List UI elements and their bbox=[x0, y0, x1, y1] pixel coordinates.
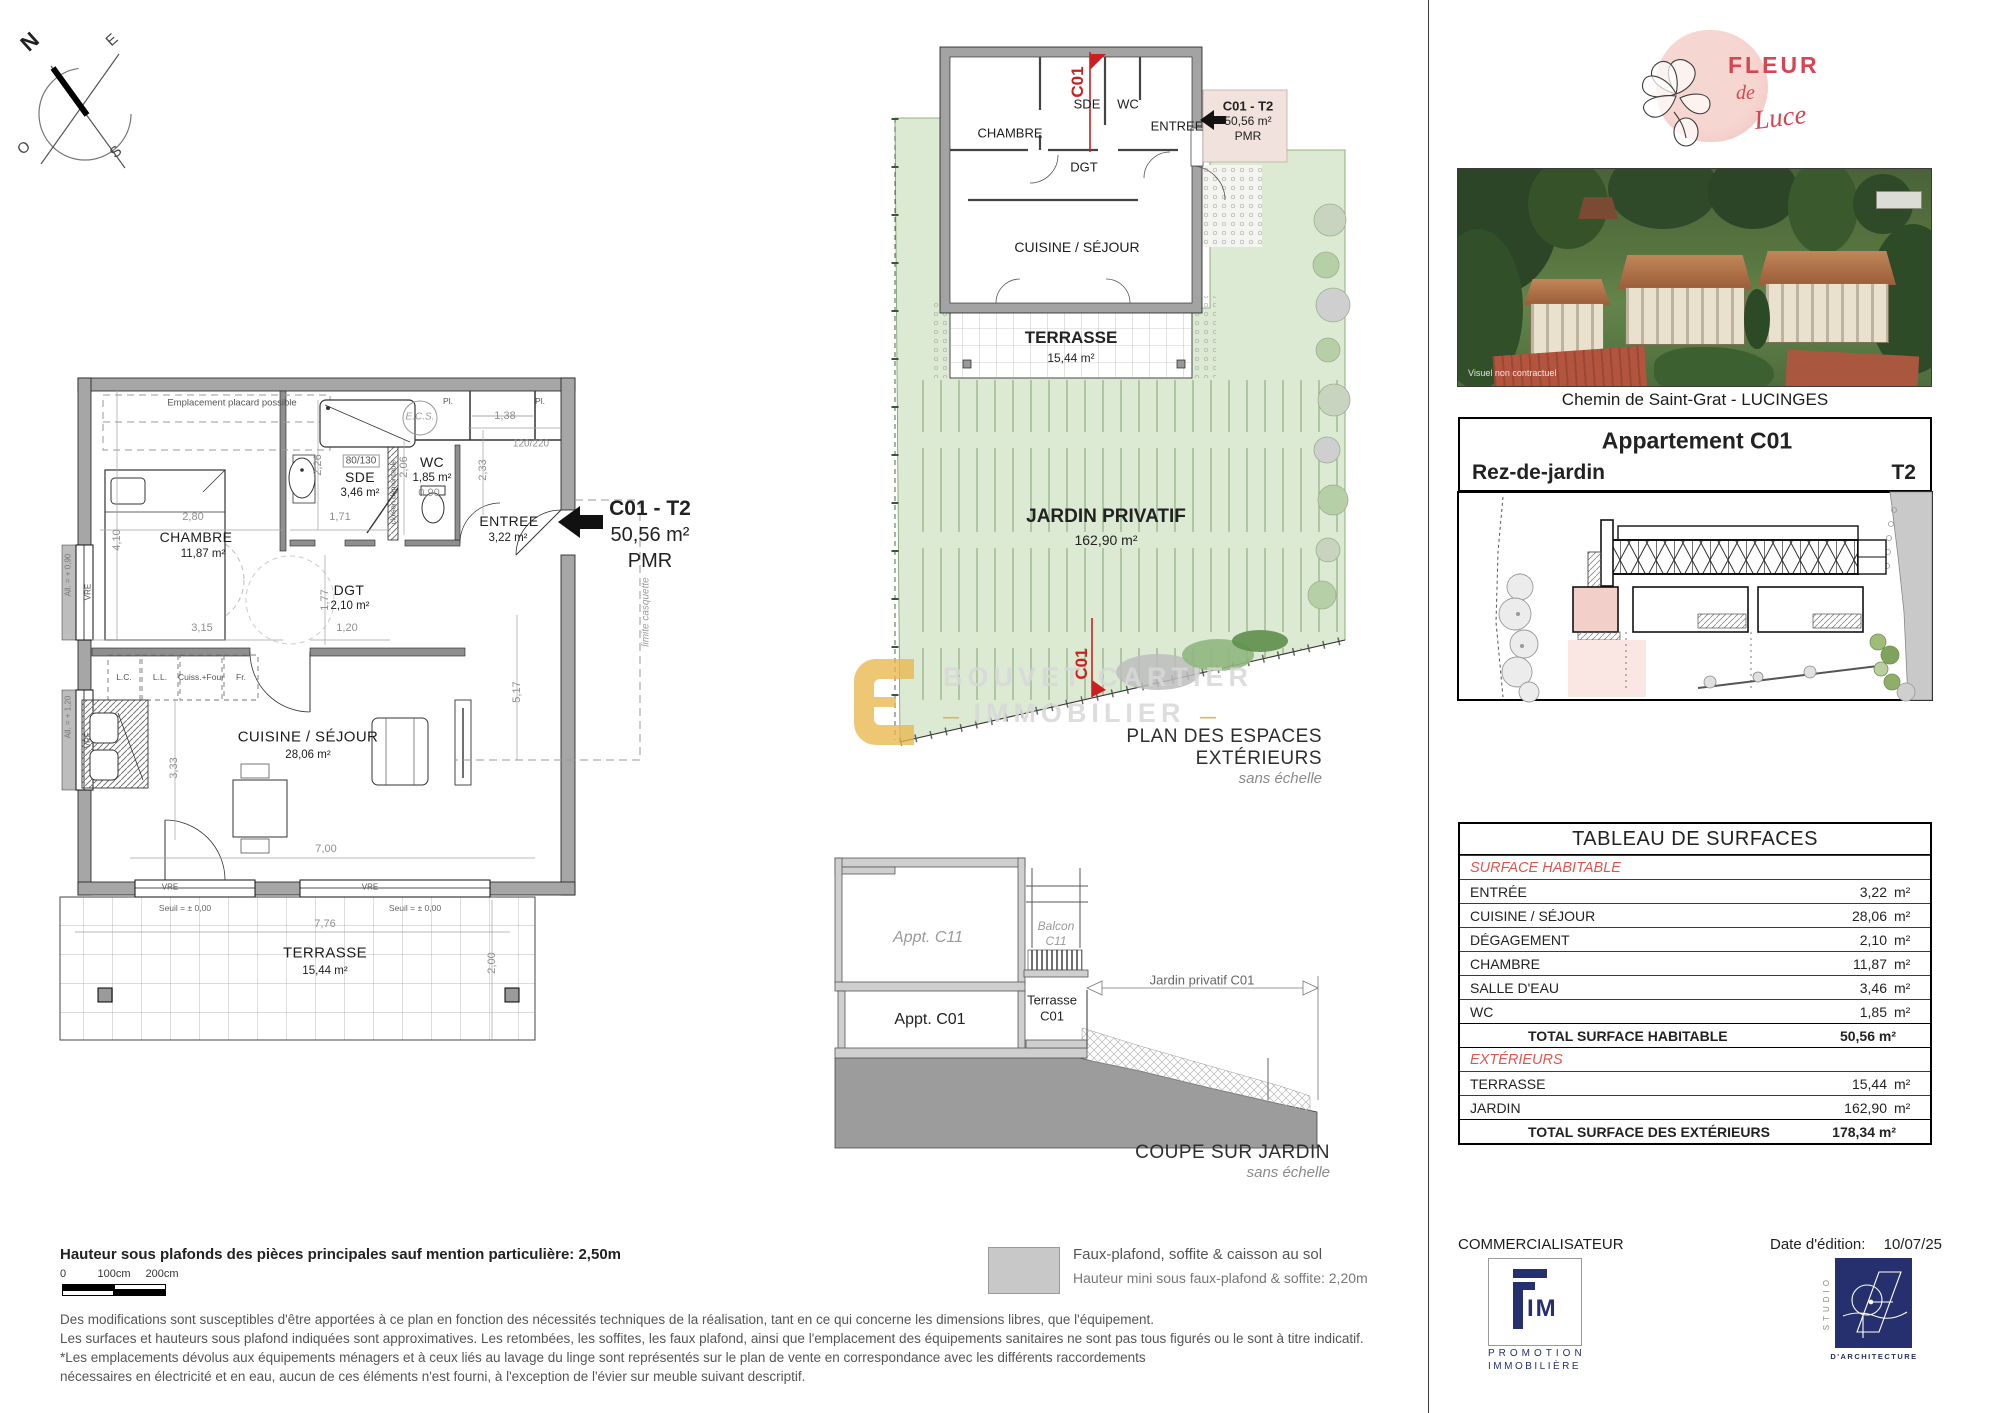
foreground-roof bbox=[1785, 350, 1919, 387]
surfaces-table: TABLEAU DE SURFACES SURFACE HABITABLE EN… bbox=[1458, 822, 1932, 1145]
legend-line1: Faux-plafond, soffite & caisson au sol bbox=[1073, 1246, 1322, 1263]
scale-bar-segment bbox=[114, 1290, 166, 1296]
site-jardin-area: 162,90 m² bbox=[1074, 532, 1137, 548]
surfaces-section-exterieurs: EXTÉRIEURS bbox=[1460, 1047, 1930, 1071]
disclaimer-line1: Des modifications sont susceptibles d'êt… bbox=[60, 1312, 1154, 1327]
edition-date-label: Date d'édition: bbox=[1770, 1236, 1865, 1253]
placard-note: Emplacement placard possible bbox=[167, 398, 296, 409]
dim-1-20: 1,20 bbox=[336, 622, 357, 634]
background-house bbox=[1876, 191, 1922, 209]
dim-7-00: 7,00 bbox=[315, 843, 336, 855]
scale-200-label: 200cm bbox=[145, 1268, 178, 1280]
dim-7-76: 7,76 bbox=[314, 918, 335, 930]
plan-sheet: N E S O bbox=[0, 0, 2000, 1413]
background-roof bbox=[1578, 197, 1618, 219]
house bbox=[1530, 303, 1604, 355]
surfaces-total-habitable: TOTAL SURFACE HABITABLE50,56 m² bbox=[1460, 1023, 1930, 1047]
unit-tag-area: 50,56 m² bbox=[598, 522, 702, 548]
brand-logo: FLEUR de Luce bbox=[1640, 24, 1820, 150]
cut-mark-c01-bottom: C01 bbox=[1072, 648, 1092, 679]
appliance-ll-label: L.L. bbox=[153, 672, 167, 682]
closet-pl-label: Pl. bbox=[535, 396, 545, 406]
limite-casquette-label: limite casquette bbox=[641, 577, 652, 646]
studio-vertical-label: STUDIO bbox=[1822, 1258, 1831, 1348]
dim-2-80: 2,80 bbox=[182, 511, 203, 523]
site-terrasse-label: TERRASSE bbox=[1025, 328, 1118, 348]
room-sde-label: SDE bbox=[345, 469, 375, 485]
brand-de-text: de bbox=[1736, 82, 1755, 105]
brand-flower-icon bbox=[1628, 46, 1728, 151]
room-wc-label: WC bbox=[420, 454, 444, 470]
section-title: COUPE SUR JARDIN bbox=[1030, 1142, 1330, 1164]
site-chambre-label: CHAMBRE bbox=[977, 126, 1042, 141]
room-terrasse-label: TERRASSE bbox=[283, 945, 367, 962]
room-dgt-area: 2,10 m² bbox=[331, 600, 370, 612]
section-appt-c11-label: Appt. C11 bbox=[893, 929, 963, 947]
surfaces-row: DÉGAGEMENT2,10m² bbox=[1460, 927, 1930, 951]
unit-tag-code: C01 - T2 bbox=[598, 496, 702, 522]
fim-logo-bar bbox=[1513, 1269, 1547, 1278]
edition-date: Date d'édition: 10/07/25 bbox=[1770, 1236, 1942, 1253]
edition-date-value: 10/07/25 bbox=[1884, 1236, 1942, 1253]
dim-5-17: 5,17 bbox=[511, 681, 523, 702]
window-vre-label: VRE bbox=[84, 584, 93, 600]
site-plan-subtitle: sans échelle bbox=[1022, 770, 1322, 787]
fim-immobiliere-label: IMMOBILIÈRE bbox=[1488, 1361, 1580, 1372]
dim-2-26: 2,26 bbox=[312, 454, 324, 475]
site-plan-title-block: PLAN DES ESPACES EXTÉRIEURS sans échelle bbox=[1022, 726, 1322, 787]
apartment-title: Appartement C01 bbox=[1602, 428, 1792, 455]
house bbox=[1625, 287, 1745, 345]
site-sde-label: SDE bbox=[1074, 97, 1101, 112]
room-chambre-area: 11,87 m² bbox=[181, 548, 226, 560]
house-roof bbox=[1758, 251, 1896, 285]
seuil-label: Seuil = ± 0,00 bbox=[159, 903, 211, 913]
section-appt-c01-label: Appt. C01 bbox=[894, 1011, 965, 1029]
dim-0-90: 0,90 bbox=[418, 487, 439, 499]
shower-size-label: 80/130 bbox=[343, 455, 380, 468]
fim-logo-im: IM bbox=[1527, 1295, 1558, 1323]
dim-2-00: 2,00 bbox=[486, 952, 498, 973]
room-wc-area: 1,85 m² bbox=[413, 472, 452, 484]
surfaces-row: SALLE D'EAU3,46m² bbox=[1460, 975, 1930, 999]
dim-1-38: 1,38 bbox=[494, 410, 515, 422]
dim-1-71: 1,71 bbox=[329, 511, 350, 523]
section-terrasse-c01-label: C01 bbox=[1040, 1009, 1064, 1024]
surfaces-row: CHAMBRE11,87m² bbox=[1460, 951, 1930, 975]
closet-pl-label: Pl. bbox=[443, 396, 453, 406]
room-cuisine-area: 28,06 m² bbox=[285, 749, 330, 761]
fim-logo-serif bbox=[1523, 1282, 1535, 1290]
site-wc-label: WC bbox=[1117, 97, 1139, 112]
architecture-label: D'ARCHITECTURE bbox=[1830, 1352, 1918, 1361]
architecture-logo-art-icon bbox=[1835, 1258, 1912, 1348]
dim-2-33: 2,33 bbox=[477, 459, 489, 480]
window-vre-label: VRE bbox=[162, 883, 178, 892]
section-terrasse-label: Terrasse bbox=[1027, 993, 1077, 1008]
column-divider bbox=[1428, 0, 1429, 1413]
room-terrasse-area: 15,44 m² bbox=[302, 965, 347, 977]
section-jardin-dim-label: Jardin privatif C01 bbox=[1150, 973, 1255, 988]
dim-3-33: 3,33 bbox=[168, 757, 180, 778]
house bbox=[1765, 283, 1889, 343]
apartment-type: T2 bbox=[1891, 461, 1916, 485]
surfaces-row: WC1,85m² bbox=[1460, 999, 1930, 1023]
surfaces-row: JARDIN162,90m² bbox=[1460, 1095, 1930, 1119]
tree bbox=[1708, 168, 1798, 229]
room-dgt-label: DGT bbox=[334, 582, 365, 598]
dim-4-10: 4,10 bbox=[111, 529, 123, 550]
allege-090-label: All. = + 0,90 bbox=[64, 554, 73, 597]
disclaimer-line3: *Les emplacements dévolus aux équipement… bbox=[60, 1350, 1146, 1365]
room-chambre-label: CHAMBRE bbox=[160, 529, 233, 545]
room-entree-area: 3,22 m² bbox=[489, 532, 528, 544]
site-tag-pmr: PMR bbox=[1235, 129, 1262, 143]
appliance-lc-label: L.C. bbox=[116, 672, 132, 682]
disclaimer-line2: Les surfaces et hauteurs sous plafond in… bbox=[60, 1331, 1364, 1346]
appliance-fr-label: Fr. bbox=[236, 672, 246, 682]
ecs-label: E.C.S. bbox=[406, 412, 435, 423]
section-subtitle: sans échelle bbox=[1030, 1164, 1330, 1181]
tree bbox=[1744, 289, 1770, 349]
surfaces-table-title: TABLEAU DE SURFACES bbox=[1460, 824, 1930, 855]
surfaces-row: ENTRÉE3,22m² bbox=[1460, 879, 1930, 903]
surfaces-section-habitable: SURFACE HABITABLE bbox=[1460, 855, 1930, 879]
dim-2-06: 2,06 bbox=[398, 456, 410, 477]
cloison-demontable-label: cloison démontable bbox=[389, 460, 398, 525]
window-120-220-label: 120/220 bbox=[513, 439, 549, 450]
site-jardin-label: JARDIN PRIVATIF bbox=[1026, 506, 1186, 528]
apartment-title-box: Appartement C01 Rez-de-jardin T2 bbox=[1458, 417, 1932, 492]
site-dgt-label: DGT bbox=[1070, 160, 1097, 175]
dim-3-15: 3,15 bbox=[191, 622, 212, 634]
apartment-level: Rez-de-jardin bbox=[1472, 461, 1605, 485]
scale-bar-segment bbox=[62, 1290, 114, 1296]
site-plan-drawing bbox=[878, 40, 1353, 800]
house-roof bbox=[1618, 255, 1752, 289]
cut-mark-c01-top: C01 bbox=[1068, 66, 1088, 97]
section-balcon-label: Balcon bbox=[1038, 919, 1075, 933]
room-entree-label: ENTREE bbox=[479, 513, 538, 529]
legend-swatch bbox=[988, 1247, 1060, 1294]
room-cuisine-label: CUISINE / SÉJOUR bbox=[238, 729, 379, 746]
section-title-block: COUPE SUR JARDIN sans échelle bbox=[1030, 1142, 1330, 1181]
brand-fleur-text: FLEUR bbox=[1728, 52, 1820, 79]
unit-tag-pmr: PMR bbox=[598, 548, 702, 574]
window-vre-label: VRE bbox=[84, 732, 93, 748]
site-entree-label: ENTREE bbox=[1151, 119, 1204, 134]
ceiling-height-note: Hauteur sous plafonds des pièces princip… bbox=[60, 1246, 621, 1263]
surfaces-row: CUISINE / SÉJOUR28,06m² bbox=[1460, 903, 1930, 927]
tree bbox=[1608, 168, 1718, 229]
site-tag-code: C01 - T2 bbox=[1223, 99, 1274, 114]
scale-0-label: 0 bbox=[60, 1268, 66, 1280]
allege-120-label: All. = + 1,20 bbox=[64, 696, 73, 739]
tree bbox=[1788, 168, 1858, 254]
site-plan-title: PLAN DES ESPACES EXTÉRIEURS bbox=[1022, 726, 1322, 770]
fim-logo-stem bbox=[1513, 1282, 1523, 1329]
photo-disclaimer: Visuel non contractuel bbox=[1468, 368, 1556, 378]
brand-luce-text: Luce bbox=[1752, 99, 1808, 136]
legend-line2: Hauteur mini sous faux-plafond & soffite… bbox=[1073, 1270, 1368, 1286]
scale-100-label: 100cm bbox=[97, 1268, 130, 1280]
locator-plan-drawing bbox=[1458, 492, 1932, 700]
bush bbox=[1654, 347, 1774, 387]
appliance-four-label: Cuiss.+Four bbox=[178, 672, 224, 682]
architecture-logo bbox=[1835, 1258, 1912, 1348]
dim-1-77: 1,77 bbox=[319, 589, 331, 610]
fim-promotion-label: PROMOTION bbox=[1488, 1348, 1580, 1359]
unit-tag: C01 - T2 50,56 m² PMR bbox=[598, 496, 702, 574]
site-cuisine-label: CUISINE / SÉJOUR bbox=[1014, 239, 1139, 255]
seuil-label: Seuil = ± 0,00 bbox=[389, 903, 441, 913]
surfaces-total-exterieurs: TOTAL SURFACE DES EXTÉRIEURS178,34 m² bbox=[1460, 1119, 1930, 1143]
site-terrasse-area: 15,44 m² bbox=[1047, 351, 1094, 365]
project-photo: Visuel non contractuel bbox=[1457, 168, 1932, 387]
fim-logo: IM bbox=[1488, 1258, 1582, 1346]
site-tag-area: 50,56 m² bbox=[1224, 114, 1271, 128]
section-balcon-c11-label: C11 bbox=[1045, 934, 1066, 948]
room-sde-area: 3,46 m² bbox=[341, 487, 380, 499]
commercialisateur-label: COMMERCIALISATEUR bbox=[1458, 1236, 1624, 1253]
disclaimer-line4: nécessaires en électricité et en eau, au… bbox=[60, 1369, 805, 1384]
project-address: Chemin de Saint-Grat - LUCINGES bbox=[1562, 390, 1828, 410]
window-vre-label: VRE bbox=[362, 883, 378, 892]
surfaces-row: TERRASSE15,44m² bbox=[1460, 1071, 1930, 1095]
house-roof bbox=[1524, 279, 1610, 305]
